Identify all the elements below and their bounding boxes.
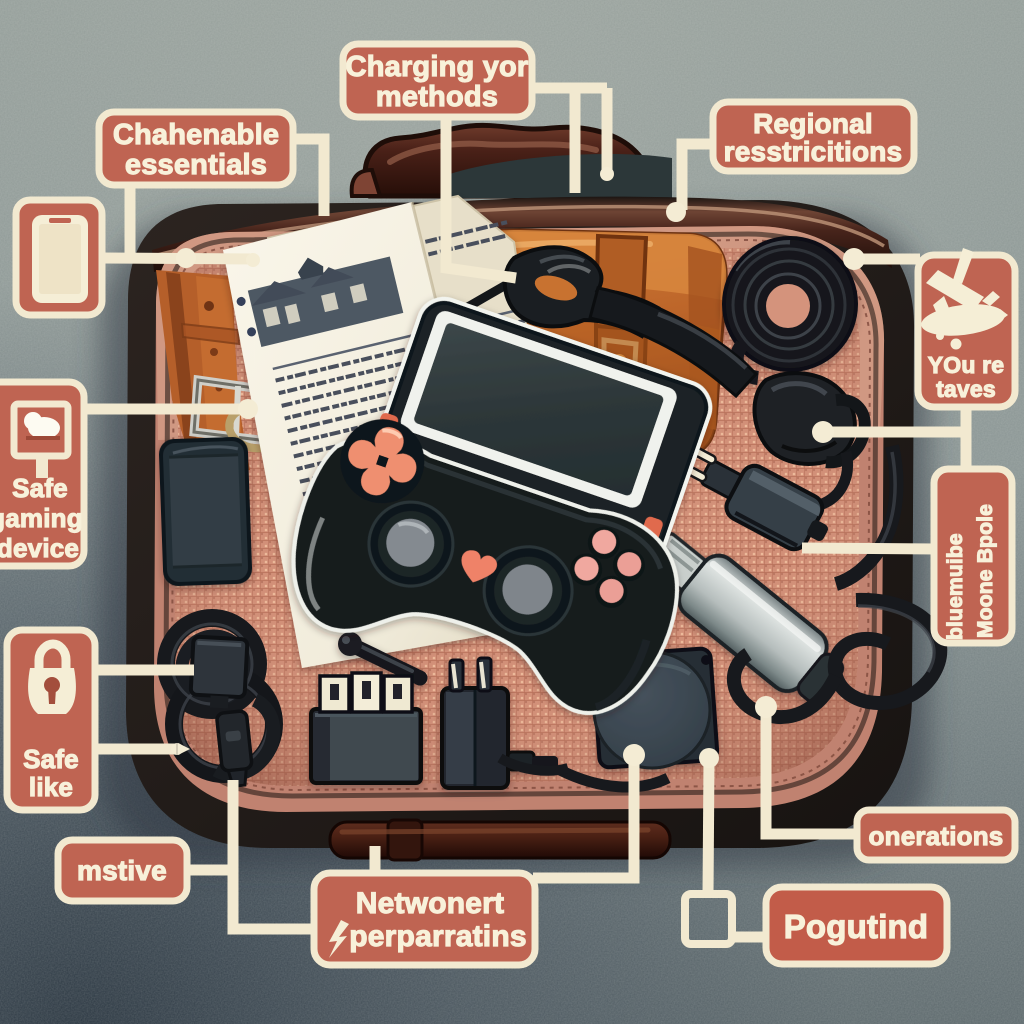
svg-text:mstive: mstive bbox=[77, 855, 167, 886]
svg-text:like: like bbox=[29, 772, 73, 802]
svg-text:bluemuibe: bluemuibe bbox=[944, 533, 967, 640]
svg-text:Safe: Safe bbox=[12, 473, 68, 503]
svg-text:onerations: onerations bbox=[869, 821, 1004, 851]
svg-text:taves: taves bbox=[936, 376, 996, 402]
svg-text:perparratins: perparratins bbox=[349, 920, 526, 953]
svg-text:Regional: Regional bbox=[753, 108, 873, 139]
svg-text:device: device bbox=[0, 533, 79, 563]
svg-text:Moone Bpole: Moone Bpole bbox=[974, 504, 997, 638]
svg-text:Chahenable: Chahenable bbox=[113, 119, 279, 151]
svg-text:essentials: essentials bbox=[125, 149, 267, 181]
svg-text:Pogutind: Pogutind bbox=[784, 908, 929, 945]
svg-text:Charging yor: Charging yor bbox=[346, 51, 529, 83]
svg-text:YOu re: YOu re bbox=[928, 352, 1005, 378]
svg-text:Safe: Safe bbox=[23, 744, 79, 774]
svg-text:Netwonert: Netwonert bbox=[356, 887, 504, 920]
svg-text:methods: methods bbox=[376, 81, 498, 113]
svg-text:resstricitions: resstricitions bbox=[724, 136, 903, 167]
svg-text:gaming: gaming bbox=[0, 503, 83, 533]
